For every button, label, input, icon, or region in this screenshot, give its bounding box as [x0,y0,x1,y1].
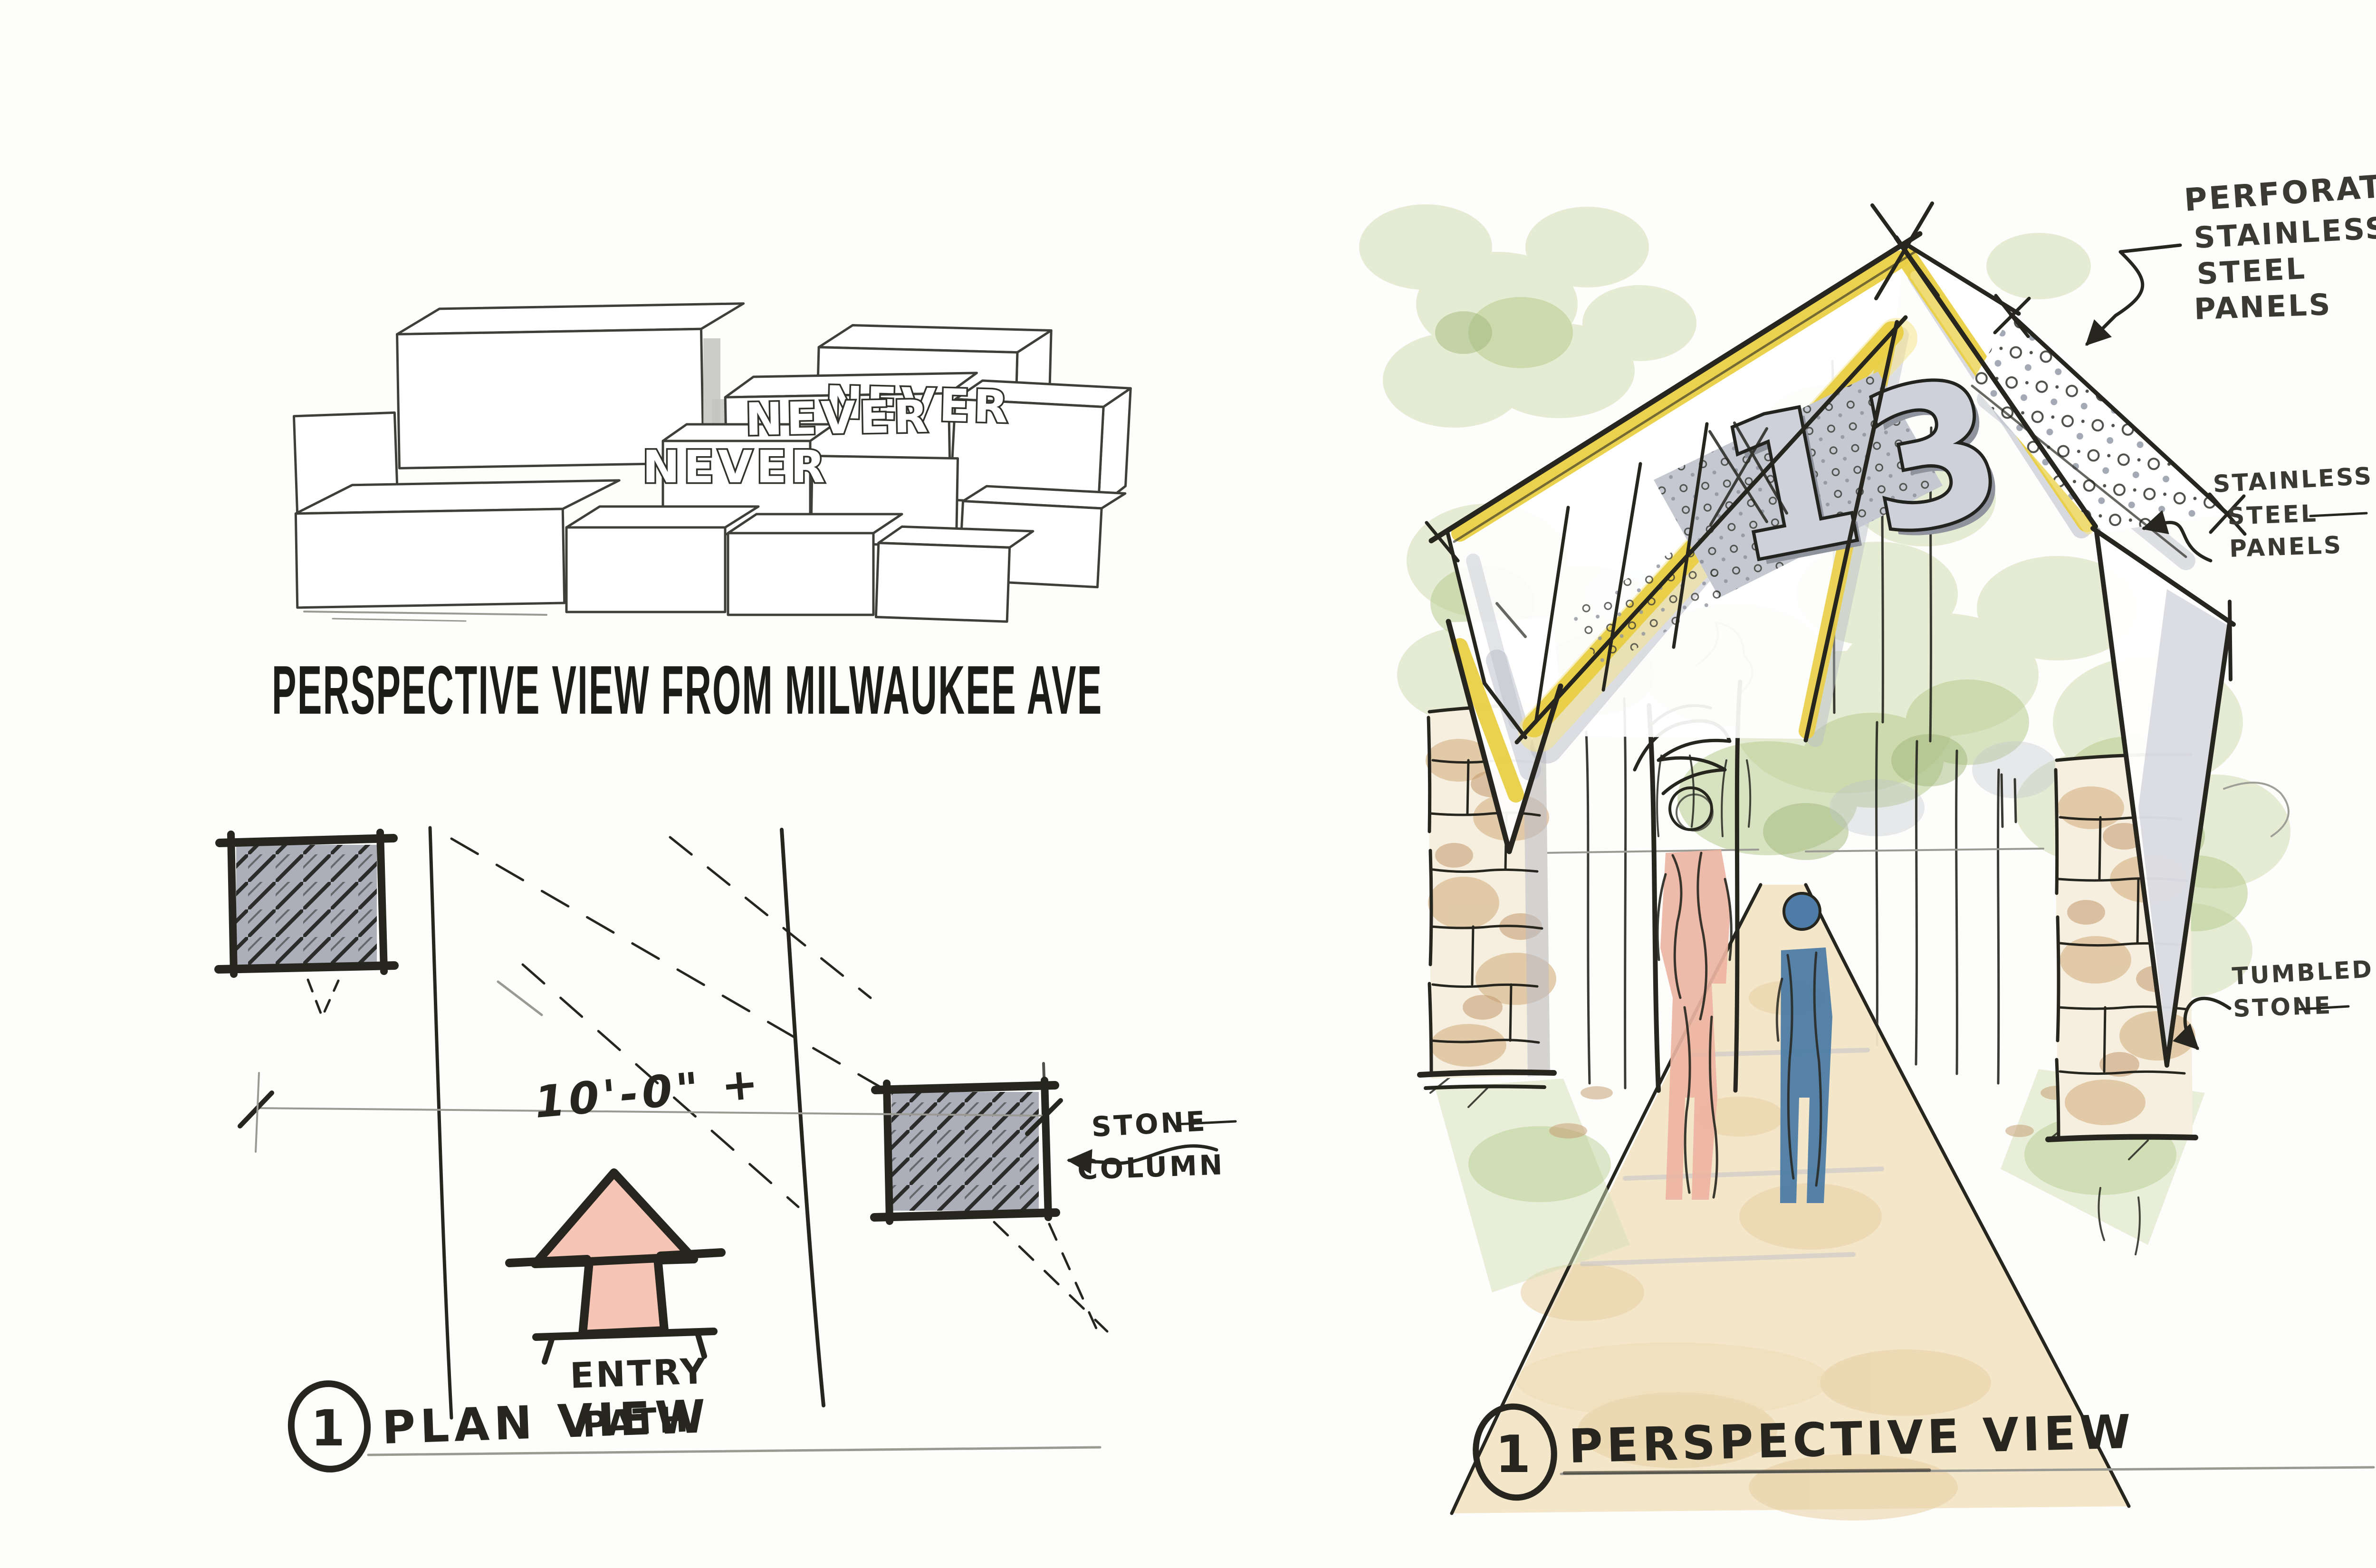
note-leader [2185,998,2230,1048]
plan-view: 10'-0" + STONE COLUMN ENTRY PATH 1 PLAN … [219,828,1236,1473]
entry-path-label-line: ENTRY [569,1351,708,1396]
perspective-view: 13 13 [1359,164,2376,1520]
note-line: STEEL [2227,499,2318,530]
never-label: NEVER [642,441,829,493]
plan-stone-column-right [874,1080,1056,1221]
plan-path-edge-left [430,828,451,1418]
sketch-block [876,526,1033,622]
note-line: TUMBLED [2232,955,2375,990]
plan-view-marker-number: 1 [311,1399,345,1457]
note-line: PANELS [2229,531,2343,563]
plan-path-edge-right [782,830,824,1405]
drawing-canvas: NEVER NEVER NEVER PERSPECTIVE VIEW FROM … [0,0,2376,1568]
note-line: PANELS [2194,287,2333,326]
plan-view-title: PLAN VIEW [381,1390,711,1454]
left-sketch-caption: PERSPECTIVE VIEW FROM MILWAUKEE AVE [272,651,1103,728]
sketch-sheet: NEVER NEVER NEVER PERSPECTIVE VIEW FROM … [0,0,2376,1568]
note-leader [2087,245,2180,344]
perspective-view-marker-number: 1 [1495,1425,1531,1484]
never-label: NEVER [745,391,932,446]
note-line: PERFORATED [2183,164,2376,219]
horizon-pencil-line [1806,849,2043,851]
plan-view-title-group: 1 PLAN VIEW [287,1380,1100,1473]
note-perforated-panels: PERFORATED STAINLESS STEEL PANELS [2087,164,2376,344]
horizon-pencil-line [1544,850,1758,853]
note-line: STAINLESS [2193,210,2376,255]
plan-stone-column-left [219,832,394,1017]
plan-stone-column-note: STONE COLUMN [1069,1105,1236,1186]
note-line: STAINLESS [2213,462,2374,498]
note-line: STEEL [2196,251,2308,291]
ground-pencil-line [304,612,546,615]
plan-dimension-label: 10'-0" + [533,1058,764,1128]
pencil-tick [498,982,542,1015]
never-blocks-sketch: NEVER NEVER NEVER [294,304,1131,622]
ground-pencil-line [333,619,466,621]
